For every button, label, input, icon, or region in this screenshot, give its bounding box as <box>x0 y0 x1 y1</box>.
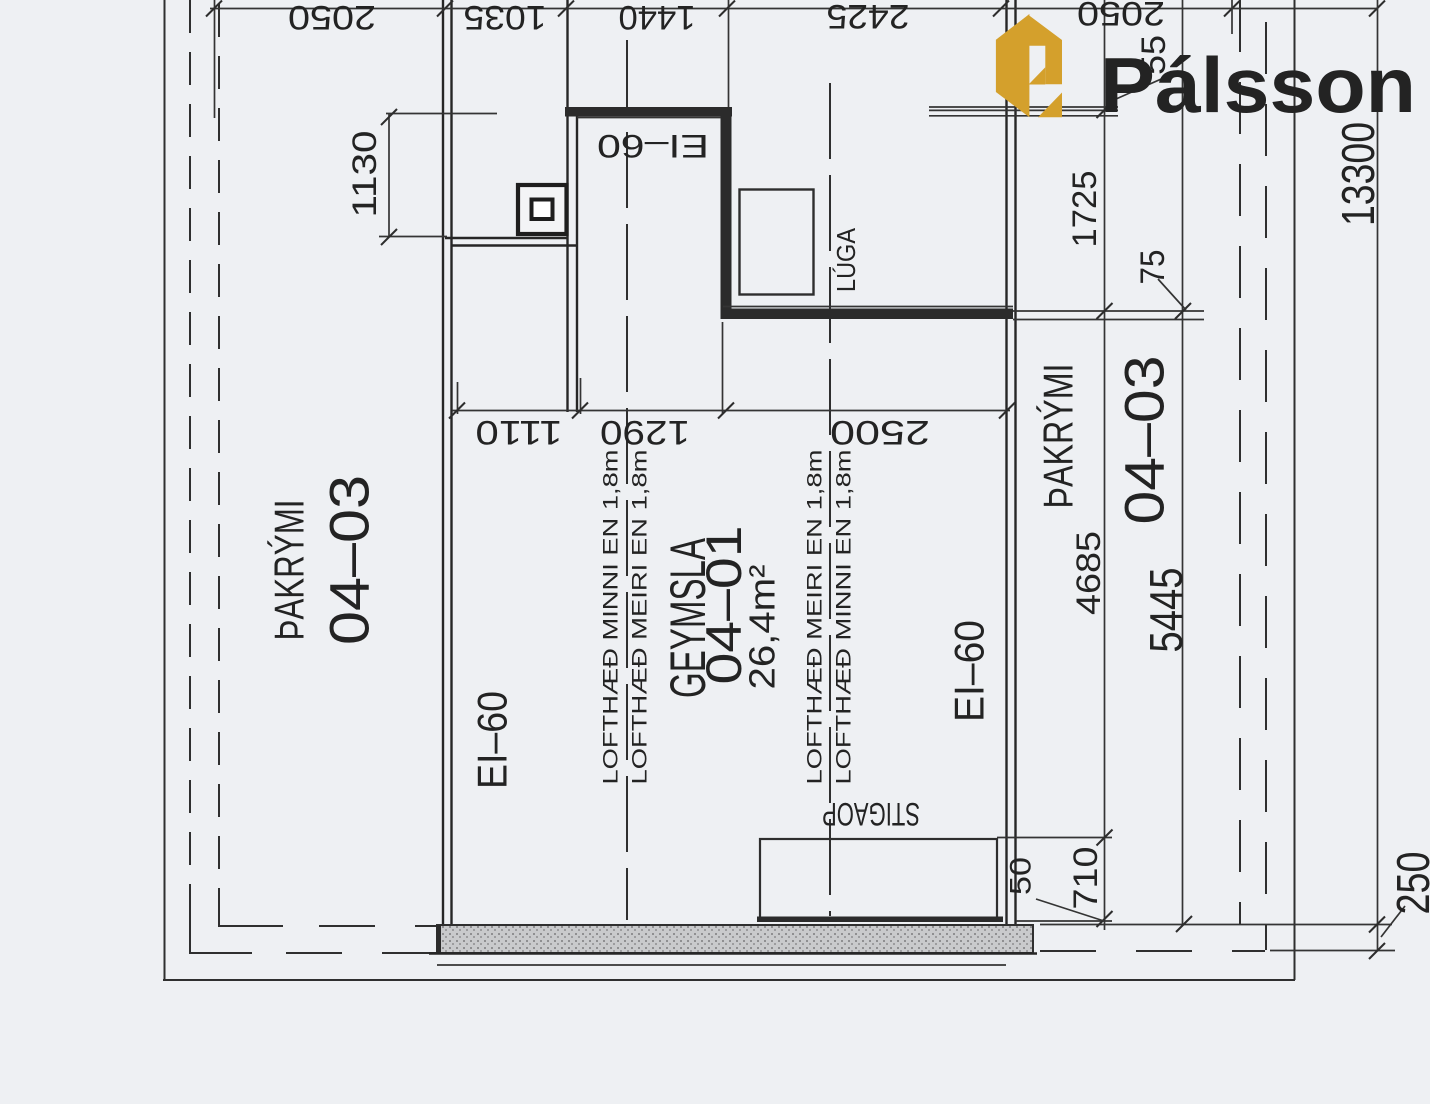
svg-text:2050: 2050 <box>288 0 376 36</box>
svg-text:5445: 5445 <box>1140 568 1192 653</box>
svg-text:250: 250 <box>1387 852 1430 915</box>
svg-text:2425: 2425 <box>827 0 910 35</box>
svg-text:2050: 2050 <box>1077 0 1165 32</box>
svg-text:STIGAOP: STIGAOP <box>822 796 920 832</box>
svg-text:1290: 1290 <box>600 413 690 451</box>
svg-text:4685: 4685 <box>1070 531 1108 615</box>
svg-text:04–03: 04–03 <box>1113 356 1176 525</box>
svg-text:75: 75 <box>1134 250 1172 285</box>
svg-text:ÞAKRÝMI: ÞAKRÝMI <box>1035 364 1082 509</box>
svg-text:1035: 1035 <box>464 0 547 36</box>
svg-text:LOFTHÆÐ MINNI EN 1,8m: LOFTHÆÐ MINNI EN 1,8m <box>600 450 623 785</box>
svg-text:Pálsson: Pálsson <box>1100 41 1416 129</box>
svg-text:2500: 2500 <box>830 413 930 451</box>
svg-text:1110: 1110 <box>476 413 563 451</box>
svg-text:1130: 1130 <box>346 131 384 218</box>
svg-text:04–03: 04–03 <box>318 475 381 645</box>
svg-text:710: 710 <box>1067 847 1105 910</box>
svg-text:50: 50 <box>1005 857 1038 895</box>
svg-text:ÞAKRÝMI: ÞAKRÝMI <box>266 500 313 641</box>
svg-text:LÚGA: LÚGA <box>831 227 861 292</box>
svg-text:1725: 1725 <box>1066 171 1104 248</box>
svg-text:26,4m²: 26,4m² <box>742 564 783 689</box>
svg-text:LOFTHÆÐ MINNI EN 1,8m: LOFTHÆÐ MINNI EN 1,8m <box>833 450 856 785</box>
svg-text:1440: 1440 <box>619 0 696 36</box>
svg-text:EI–60: EI–60 <box>469 691 516 789</box>
svg-text:13300: 13300 <box>1332 122 1384 226</box>
svg-text:LOFTHÆÐ MEIRI EN 1,8m: LOFTHÆÐ MEIRI EN 1,8m <box>804 450 827 785</box>
svg-text:LOFTHÆÐ MEIRI EN 1,8m: LOFTHÆÐ MEIRI EN 1,8m <box>629 450 652 785</box>
svg-text:EI–60: EI–60 <box>946 620 993 722</box>
svg-text:EI–60: EI–60 <box>597 128 709 164</box>
